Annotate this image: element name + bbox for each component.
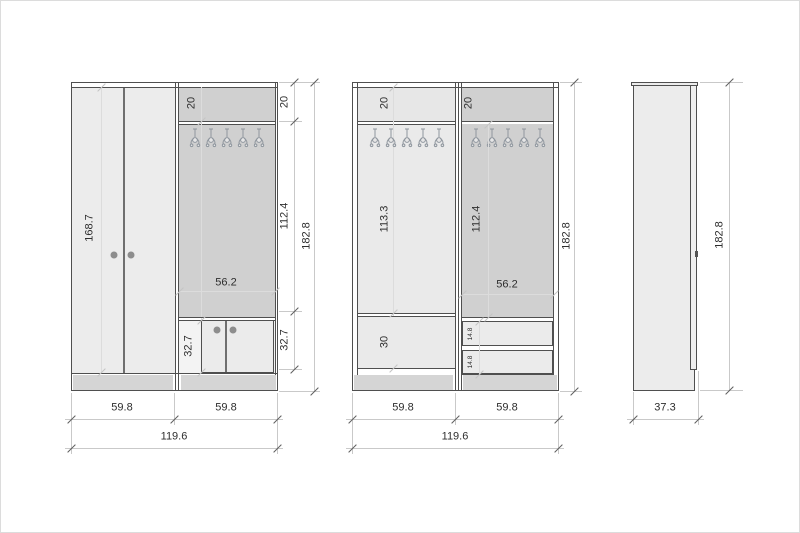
interior-width-dim-line xyxy=(462,294,553,295)
shoe-door-handle xyxy=(214,327,221,334)
extension-line xyxy=(700,390,743,391)
dim-label-bottom-compartment: 30 xyxy=(380,336,391,348)
shelf-line xyxy=(358,121,455,122)
coat-hook-icon xyxy=(189,128,201,150)
coat-hook-icon xyxy=(205,128,217,150)
extension-line xyxy=(71,393,72,454)
interior-dim-line xyxy=(479,321,480,374)
drawer-top-line xyxy=(462,317,553,318)
extension-line xyxy=(558,393,559,454)
dim-label-middle: 112.4 xyxy=(280,203,291,230)
dim-label-door-height: 168.7 xyxy=(85,214,96,242)
section-divider-line xyxy=(175,83,176,390)
coat-hook-icon xyxy=(401,128,413,150)
door-divider-line xyxy=(123,88,125,373)
extension-line xyxy=(279,369,302,370)
coat-hook-icon xyxy=(534,128,546,150)
extension-line xyxy=(700,82,743,83)
dim-label-total-height: 182.8 xyxy=(302,222,313,250)
interior-width-dim-line xyxy=(179,291,275,292)
door-handle xyxy=(695,251,698,257)
dim-label-depth: 37.3 xyxy=(654,403,675,414)
dim-label-left-top-shelf: 20 xyxy=(380,97,391,109)
dimension-line xyxy=(294,82,295,369)
dim-label-bottom: 32.7 xyxy=(280,329,291,350)
shoe-door-handle xyxy=(230,327,237,334)
dim-label-width-right: 59.8 xyxy=(496,403,517,414)
dimension-line xyxy=(627,419,704,420)
coat-hook-icon xyxy=(253,128,265,150)
door-handle xyxy=(111,252,118,259)
dim-label-drawer-2: 14.8 xyxy=(468,356,475,369)
extension-line xyxy=(352,393,353,454)
dim-label-total-height: 182.8 xyxy=(562,222,573,250)
coat-hook-icon xyxy=(470,128,482,150)
dimension-line xyxy=(346,448,564,449)
shoe-cabinet-doors xyxy=(201,320,274,373)
dim-label-left-interior: 113.3 xyxy=(380,206,391,233)
coat-hook-icon xyxy=(433,128,445,150)
interior-dim-line xyxy=(488,124,489,317)
dim-label-shoe-cabinet: 32.7 xyxy=(184,335,195,356)
extension-line xyxy=(560,82,582,83)
technical-drawing-wardrobe: 168.7 20 56.2 32.7 20 112.4 32.7 182.8 5… xyxy=(0,0,800,533)
dim-label-top: 20 xyxy=(280,96,291,108)
shelf-line xyxy=(358,313,455,314)
extension-line xyxy=(277,393,278,454)
shoe-door-divider xyxy=(225,321,227,372)
extension-line xyxy=(560,391,582,392)
hanging-compartment xyxy=(358,125,455,313)
coat-hook-icon xyxy=(518,128,530,150)
front-view-closed xyxy=(71,82,278,391)
coat-hook-icon xyxy=(369,128,381,150)
dim-label-total-height: 182.8 xyxy=(715,221,726,249)
plinth xyxy=(73,375,173,390)
plinth xyxy=(181,375,276,390)
shelf-line xyxy=(462,121,553,122)
side-view xyxy=(631,82,701,391)
dim-label-drawer-1: 14.8 xyxy=(468,328,475,341)
dimension-line xyxy=(574,82,575,391)
coat-hook-icon xyxy=(237,128,249,150)
top-shelf-compartment xyxy=(358,88,455,121)
top-shelf-compartment xyxy=(462,88,553,121)
drawer-front xyxy=(462,350,553,374)
plinth-top-line xyxy=(72,373,277,374)
dim-label-top-shelf: 20 xyxy=(187,97,198,109)
dim-label-total-width: 119.6 xyxy=(161,432,188,443)
coat-hook-icon xyxy=(385,128,397,150)
plinth xyxy=(354,375,453,390)
dimension-line xyxy=(729,82,730,390)
door-edge-panel xyxy=(690,85,697,370)
section-divider-line xyxy=(455,83,456,390)
coat-hook-row xyxy=(462,128,553,150)
dim-label-interior-width: 56.2 xyxy=(215,278,236,289)
coat-hook-icon xyxy=(417,128,429,150)
extension-line xyxy=(279,121,302,122)
section-divider-line xyxy=(458,83,459,390)
side-panel-line xyxy=(275,83,276,390)
dim-label-right-top-shelf: 20 xyxy=(464,97,475,109)
dim-label-width-left: 59.8 xyxy=(111,403,132,414)
bottom-compartment xyxy=(358,317,455,368)
side-panel-line xyxy=(553,83,554,390)
seat-line xyxy=(179,317,275,318)
shelf-line xyxy=(179,121,275,122)
coat-hook-icon xyxy=(502,128,514,150)
coat-hook-icon xyxy=(221,128,233,150)
dim-label-width-right: 59.8 xyxy=(215,403,236,414)
dimension-line xyxy=(65,448,283,449)
cabinet-body xyxy=(633,85,695,391)
plinth-top-line xyxy=(358,368,455,369)
dim-label-right-interior: 112.4 xyxy=(472,206,483,233)
extension-line xyxy=(279,311,302,312)
door-handle xyxy=(128,252,135,259)
dim-label-interior-width: 56.2 xyxy=(496,280,517,291)
dim-label-total-width: 119.6 xyxy=(442,432,469,443)
dim-label-width-left: 59.8 xyxy=(392,403,413,414)
door-height-dim-line xyxy=(101,87,102,373)
coat-hook-row xyxy=(358,128,455,150)
coat-hook-row xyxy=(179,128,275,150)
dimension-line xyxy=(314,82,315,391)
